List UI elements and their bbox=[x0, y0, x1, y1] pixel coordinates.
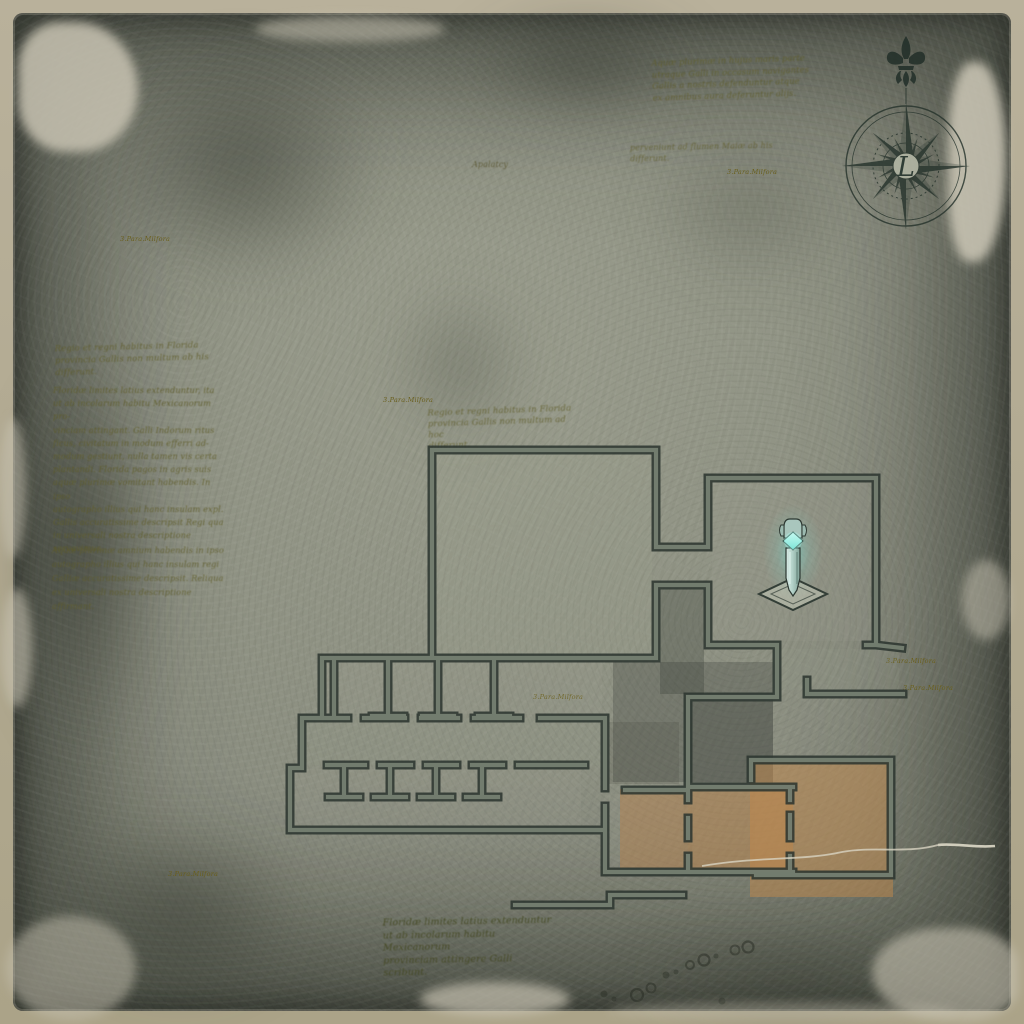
fleur-de-lis-icon bbox=[887, 36, 925, 87]
obelisk-shaft bbox=[786, 548, 800, 596]
dungeon-map: L bbox=[0, 0, 1024, 1024]
highlighted-room bbox=[620, 789, 688, 868]
ink-dot-trail-icon bbox=[601, 942, 754, 1005]
obelisk-gem-glow bbox=[784, 532, 802, 550]
parchment-map: Aquæ plurimæ in hujus maris parte utraqu… bbox=[0, 0, 1024, 1024]
compass-center-letter: L bbox=[896, 152, 915, 183]
compass-rose-icon: L bbox=[842, 88, 970, 230]
